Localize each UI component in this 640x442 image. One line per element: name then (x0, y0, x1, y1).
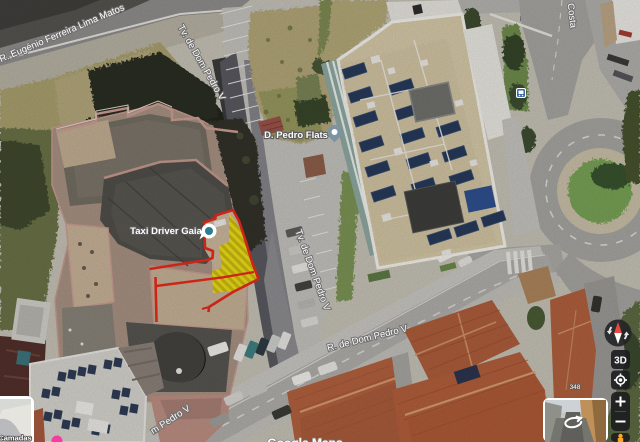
svg-text:Camadas: Camadas (0, 434, 32, 442)
svg-text:Google Maps: Google Maps (267, 436, 343, 442)
svg-text:348: 348 (570, 384, 581, 391)
svg-text:D. Pedro Flats: D. Pedro Flats (264, 130, 328, 141)
svg-text:3D: 3D (614, 356, 627, 367)
svg-text:Taxi Driver Gaia: Taxi Driver Gaia (130, 226, 202, 237)
